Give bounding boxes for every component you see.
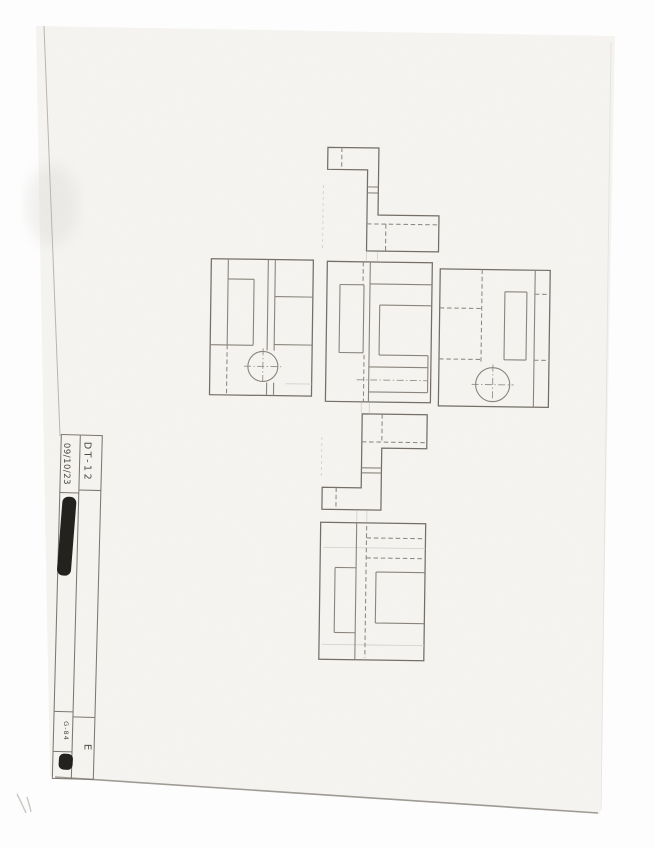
- titleblock-drawing-code: DT-12: [82, 442, 93, 482]
- stray-pencil-mark: [27, 797, 31, 812]
- stray-pencil-mark: [17, 794, 26, 813]
- paper-texture: [36, 26, 615, 814]
- photographed-drawing-sheet: 09/10/23 DT-12 G-84 E: [0, 0, 655, 848]
- engineering-drawing-svg: [0, 0, 655, 848]
- titleblock-sheet-code: G-84: [62, 721, 70, 741]
- titleblock-date: 09/10/23: [61, 443, 71, 485]
- titleblock-revision-letter: E: [82, 744, 93, 750]
- redaction-mark: [58, 753, 73, 770]
